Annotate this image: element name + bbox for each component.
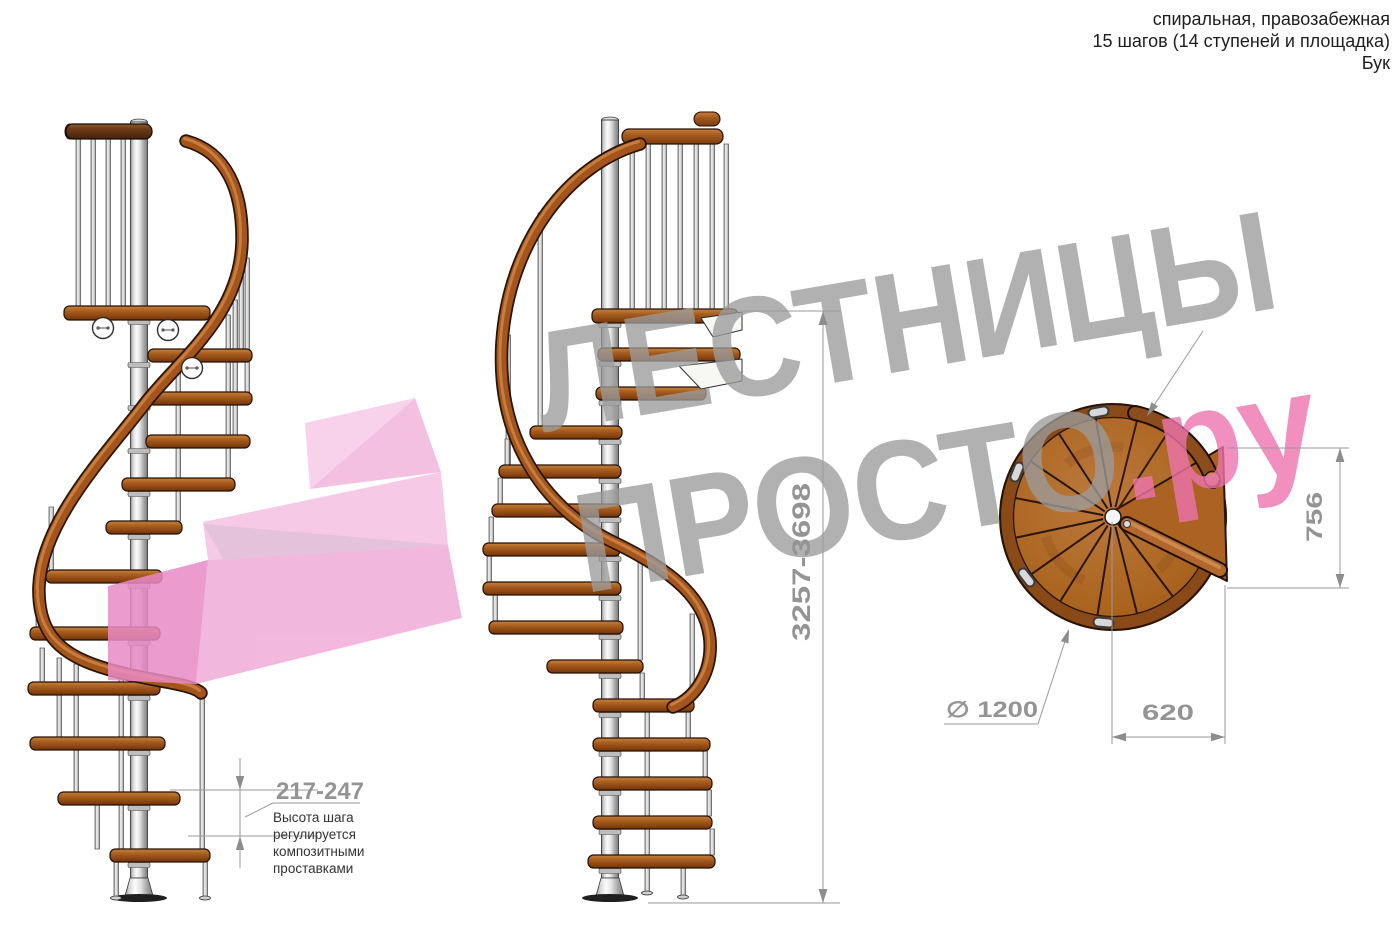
spec-line-2: 15 шагов (14 ступеней и площадка) — [1092, 31, 1390, 51]
spec-line-3: Бук — [1362, 53, 1390, 73]
watermark-line2-pink: .ру — [1105, 342, 1329, 532]
pole-base-flare — [125, 878, 153, 896]
platform-railing — [66, 124, 152, 139]
pole-base-plate — [582, 894, 638, 902]
note-line: Высота шага — [273, 810, 354, 825]
note-line: регулируется — [273, 827, 356, 842]
note-line: композитными — [273, 844, 364, 859]
dimension-diameter: ∅ 1200 — [944, 629, 1069, 724]
drawing-sheet: ЛЕСТНИЦЫ ПРОСТО.ру 3257-3698 217-247 Выс… — [0, 0, 1400, 951]
landing-width-label: 620 — [1142, 700, 1194, 725]
note-line: проставками — [273, 861, 353, 876]
spec-header: спиральная, правозабежная 15 шагов (14 с… — [1092, 9, 1390, 73]
center-pole — [131, 122, 148, 878]
diameter-label: ∅ 1200 — [946, 697, 1038, 722]
total-height-label: 3257-3698 — [788, 483, 816, 641]
step-height-note: Высота шага регулируется композитными пр… — [273, 810, 364, 876]
staircase-technical-drawing: ЛЕСТНИЦЫ ПРОСТО.ру 3257-3698 217-247 Выс… — [0, 0, 1400, 951]
logo-facet — [196, 545, 462, 684]
railing-end-knob — [694, 112, 720, 126]
pole-base-flare — [596, 878, 624, 896]
spec-line-1: спиральная, правозабежная — [1153, 9, 1390, 29]
staircase-side-view-a — [28, 119, 252, 902]
step-height-label: 217-247 — [276, 778, 364, 805]
landing-depth-label: 756 — [1302, 492, 1327, 542]
